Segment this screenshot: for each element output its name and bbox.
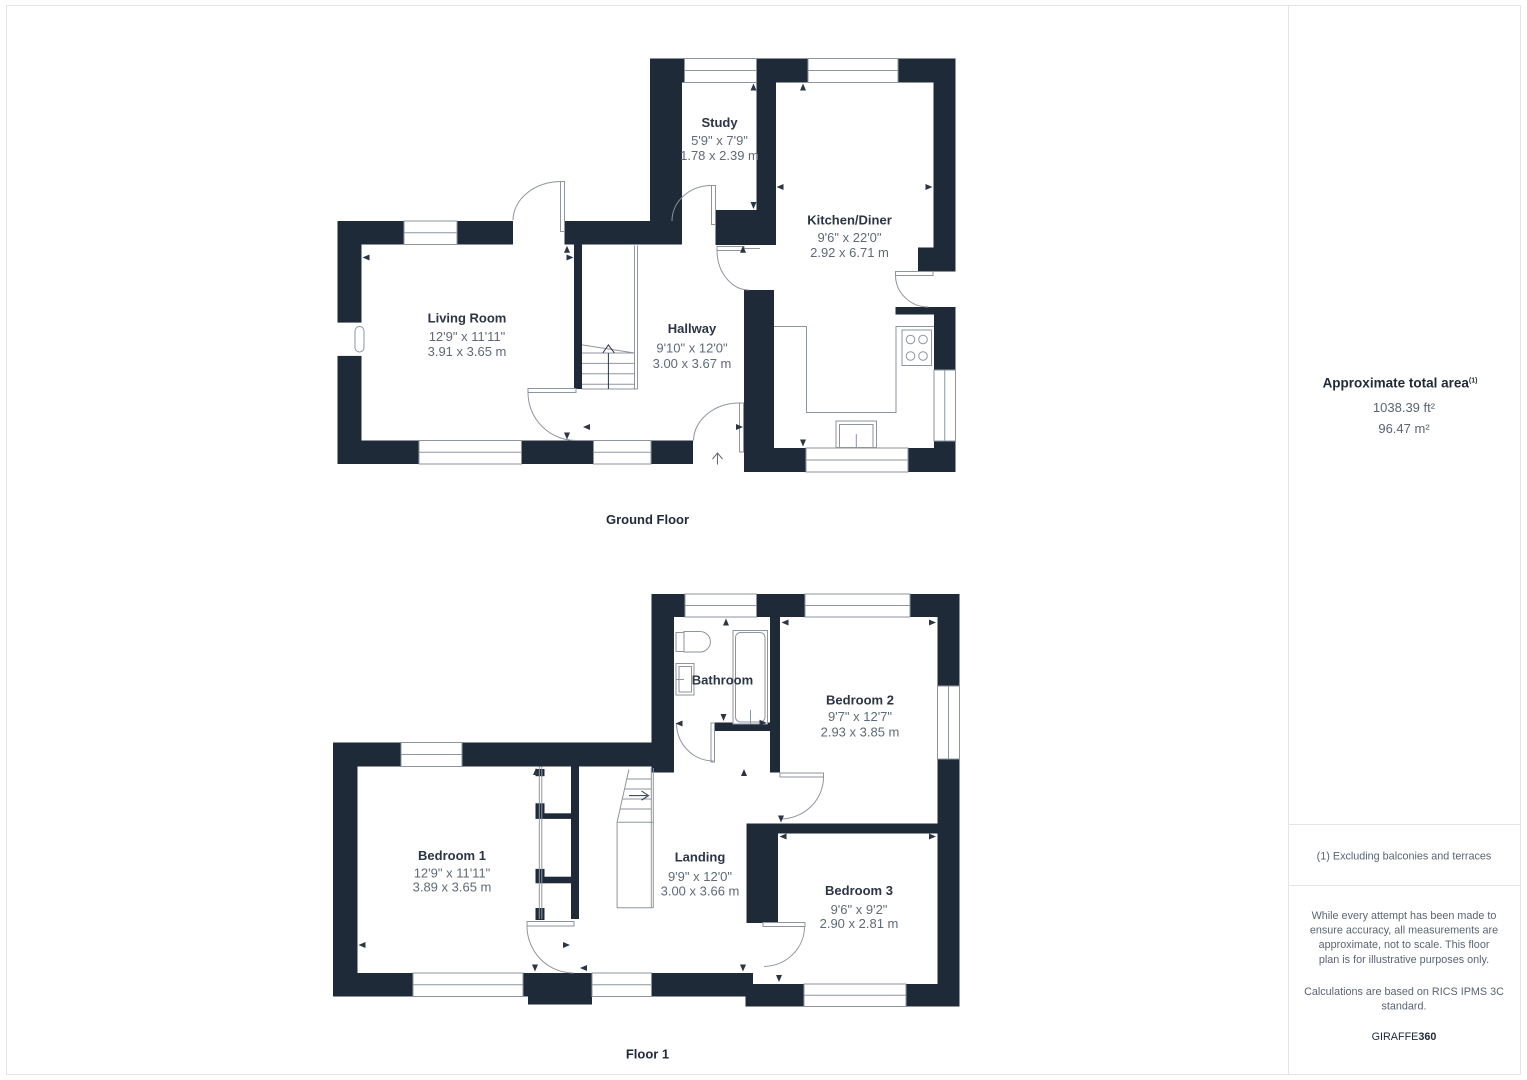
svg-text:Calculations are based on RICS: Calculations are based on RICS IPMS 3C: [1304, 986, 1504, 998]
svg-text:Living Room: Living Room: [428, 311, 507, 326]
svg-text:Bedroom 2: Bedroom 2: [826, 693, 894, 708]
svg-text:12'9" x 11'11": 12'9" x 11'11": [414, 865, 491, 880]
svg-text:Bedroom 3: Bedroom 3: [825, 883, 893, 898]
svg-text:12'9" x 11'11": 12'9" x 11'11": [429, 329, 506, 344]
svg-text:9'10" x 12'0": 9'10" x 12'0": [656, 341, 728, 356]
svg-text:3.91 x 3.65 m: 3.91 x 3.65 m: [428, 344, 507, 359]
svg-text:Bathroom: Bathroom: [692, 672, 753, 687]
svg-text:Bedroom 1: Bedroom 1: [418, 848, 486, 863]
svg-text:Kitchen/Diner: Kitchen/Diner: [807, 213, 892, 228]
svg-text:standard.: standard.: [1381, 1001, 1426, 1013]
svg-text:9'6" x 22'0": 9'6" x 22'0": [817, 230, 881, 245]
svg-text:3.00 x 3.67 m: 3.00 x 3.67 m: [653, 356, 732, 371]
svg-text:(1) Excluding balconies and te: (1) Excluding balconies and terraces: [1317, 851, 1492, 863]
svg-text:9'6" x 9'2": 9'6" x 9'2": [831, 902, 888, 917]
svg-text:Hallway: Hallway: [668, 321, 717, 336]
svg-text:While every attempt has been m: While every attempt has been made to: [1312, 910, 1497, 922]
svg-text:1038.39 ft²: 1038.39 ft²: [1373, 400, 1436, 415]
svg-text:GIRAFFE360: GIRAFFE360: [1372, 1031, 1437, 1043]
svg-text:96.47 m²: 96.47 m²: [1378, 421, 1430, 436]
svg-text:Floor 1: Floor 1: [626, 1047, 669, 1062]
svg-text:9'9" x 12'0": 9'9" x 12'0": [668, 869, 732, 884]
svg-text:3.00 x 3.66 m: 3.00 x 3.66 m: [661, 883, 740, 898]
svg-text:5'9" x 7'9": 5'9" x 7'9": [691, 133, 748, 148]
svg-text:Approximate total area(1): Approximate total area(1): [1323, 376, 1478, 391]
svg-text:1.78 x 2.39 m: 1.78 x 2.39 m: [680, 148, 759, 163]
svg-text:Landing: Landing: [675, 850, 726, 865]
svg-text:9'7" x 12'7": 9'7" x 12'7": [828, 709, 892, 724]
svg-text:2.90 x 2.81 m: 2.90 x 2.81 m: [820, 916, 899, 931]
svg-text:Ground Floor: Ground Floor: [606, 512, 689, 527]
svg-text:approximate, not to scale. Thi: approximate, not to scale. This floor: [1319, 939, 1490, 951]
svg-text:plan is for illustrative purpo: plan is for illustrative purposes only.: [1319, 954, 1489, 966]
svg-text:2.93 x 3.85 m: 2.93 x 3.85 m: [821, 725, 900, 740]
svg-text:Study: Study: [701, 115, 738, 130]
svg-text:3.89 x 3.65 m: 3.89 x 3.65 m: [413, 880, 492, 895]
svg-text:2.92 x 6.71 m: 2.92 x 6.71 m: [810, 245, 889, 260]
svg-text:ensure accuracy, all measureme: ensure accuracy, all measurements are: [1310, 925, 1498, 937]
